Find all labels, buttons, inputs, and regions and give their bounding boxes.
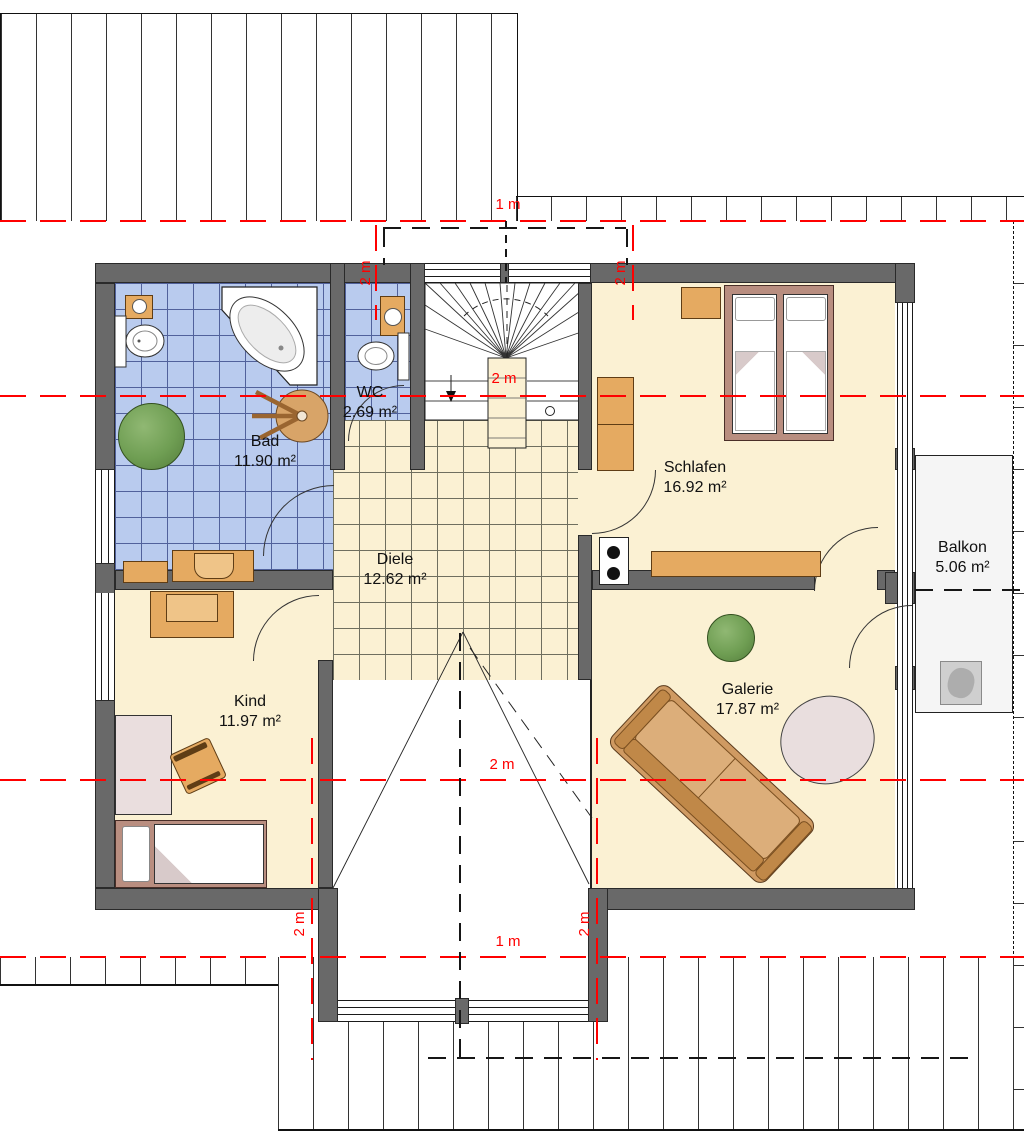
room-area-schlafen: 16.92 m² [625,478,765,498]
room-area-diele: 12.62 m² [330,570,460,590]
room-name-schlafen: Schlafen [625,458,765,478]
room-label-schlafen: Schlafen 16.92 m² [625,458,765,498]
single-bed [115,820,267,888]
dim-dormer-top-left: 2 m [358,253,374,293]
room-name-galerie: Galerie [680,680,815,700]
bad-window [95,470,115,563]
wall-left-lower [95,700,115,888]
winder-staircase [425,283,590,448]
dormer-top-outline-left [383,229,385,265]
center-line-void [459,633,461,1057]
roof-top-left [0,13,518,221]
double-bed [724,285,834,441]
room-label-galerie: Galerie 17.87 m² [680,680,815,720]
wall-bottom-right [588,888,915,910]
balkon-center-line [915,589,1024,591]
room-label-diele: Diele 12.62 m² [330,550,460,590]
wall-wc-stair [410,263,425,470]
wardrobe-door-line [598,424,633,425]
dim-dormer-bottom-right: 2 m [577,904,593,944]
roof-height-line-bottom [428,1057,968,1059]
dim-dormer-bottom-left: 2 m [292,904,308,944]
dim-stairwell: 2 m [479,371,529,387]
single-bed-pillow [122,826,150,882]
red-line-upper [0,395,1024,397]
kind-desk-drawer [166,594,218,622]
red-line-lower [0,779,1024,781]
dormer-window-post [455,998,469,1024]
wc-toilet [356,332,410,382]
pillow-left [735,297,775,321]
red-line-dormer-bottom-left [311,738,313,1060]
bad-toilet [114,313,166,371]
dim-dormer-top-right: 2 m [613,253,629,293]
room-area-bad: 11.90 m² [200,452,330,472]
corner-bathtub [222,287,317,385]
dim-roof-bottom: 1 m [483,934,533,950]
roof-top-right [516,196,1024,221]
red-line-dormer-bottom-right [596,738,598,1060]
schlafen-wardrobe [597,377,634,471]
wall-right-top-corner [895,263,915,303]
bad-vanity-sink [194,553,234,579]
planter-blob [945,665,978,701]
chimney-symbol [599,537,629,585]
room-area-balkon: 5.06 m² [905,558,1020,578]
mattress-right [783,294,828,434]
room-label-balkon: Balkon 5.06 m² [905,538,1020,578]
red-line-dormer-top-left [375,225,377,320]
room-name-bad: Bad [200,432,330,452]
schlafen-sideboard [651,551,821,577]
room-name-wc: WC [328,383,412,403]
door-threshold-schlafen [578,470,592,535]
red-line-roof-bottom [0,956,1024,958]
room-label-wc: WC 2.69 m² [328,383,412,423]
bad-cabinet-low [123,561,168,583]
red-line-dormer-top-right [632,225,634,320]
dim-void: 2 m [477,757,527,773]
room-name-balkon: Balkon [905,538,1020,558]
room-label-kind: Kind 11.97 m² [185,692,315,732]
wc-basin [384,308,402,326]
galerie-plant [707,614,755,662]
red-line-roof-top [0,220,1024,222]
center-line-top [505,221,507,283]
wall-bad-wc [330,263,345,470]
wall-left-stub [95,563,115,595]
kind-window [95,593,115,700]
roof-bottom-left [0,957,279,986]
wall-left-upper [95,283,115,470]
dormer-interior [338,888,588,1002]
room-name-kind: Kind [185,692,315,712]
room-label-bad: Bad 11.90 m² [200,432,330,472]
burner-dot-2 [607,567,620,580]
wall-top-right [590,263,915,283]
pillow-right [786,297,826,321]
bad-plant [118,403,185,470]
room-name-diele: Diele [330,550,460,570]
room-area-wc: 2.69 m² [328,403,412,423]
wall-dormer-left [318,888,338,1022]
mattress-left [732,294,777,434]
void-roof-lines [330,626,594,892]
room-area-kind: 11.97 m² [185,712,315,732]
bad-cabinet-basin [132,299,147,314]
kind-wardrobe [115,715,172,815]
burner-dot-1 [607,546,620,559]
dim-roof-top: 1 m [483,197,533,213]
wall-diele-schlafen-upper [578,283,592,470]
floor-plan: Bad 11.90 m² WC 2.69 m² Schlafen 16.92 m… [0,0,1024,1144]
duvet-right [786,351,826,431]
right-glazing [897,303,913,888]
balkon-planter [940,661,982,705]
duvet-left [735,351,775,431]
room-area-galerie: 17.87 m² [680,700,815,720]
nightstand-left [681,287,721,319]
single-bed-duvet [154,824,264,884]
